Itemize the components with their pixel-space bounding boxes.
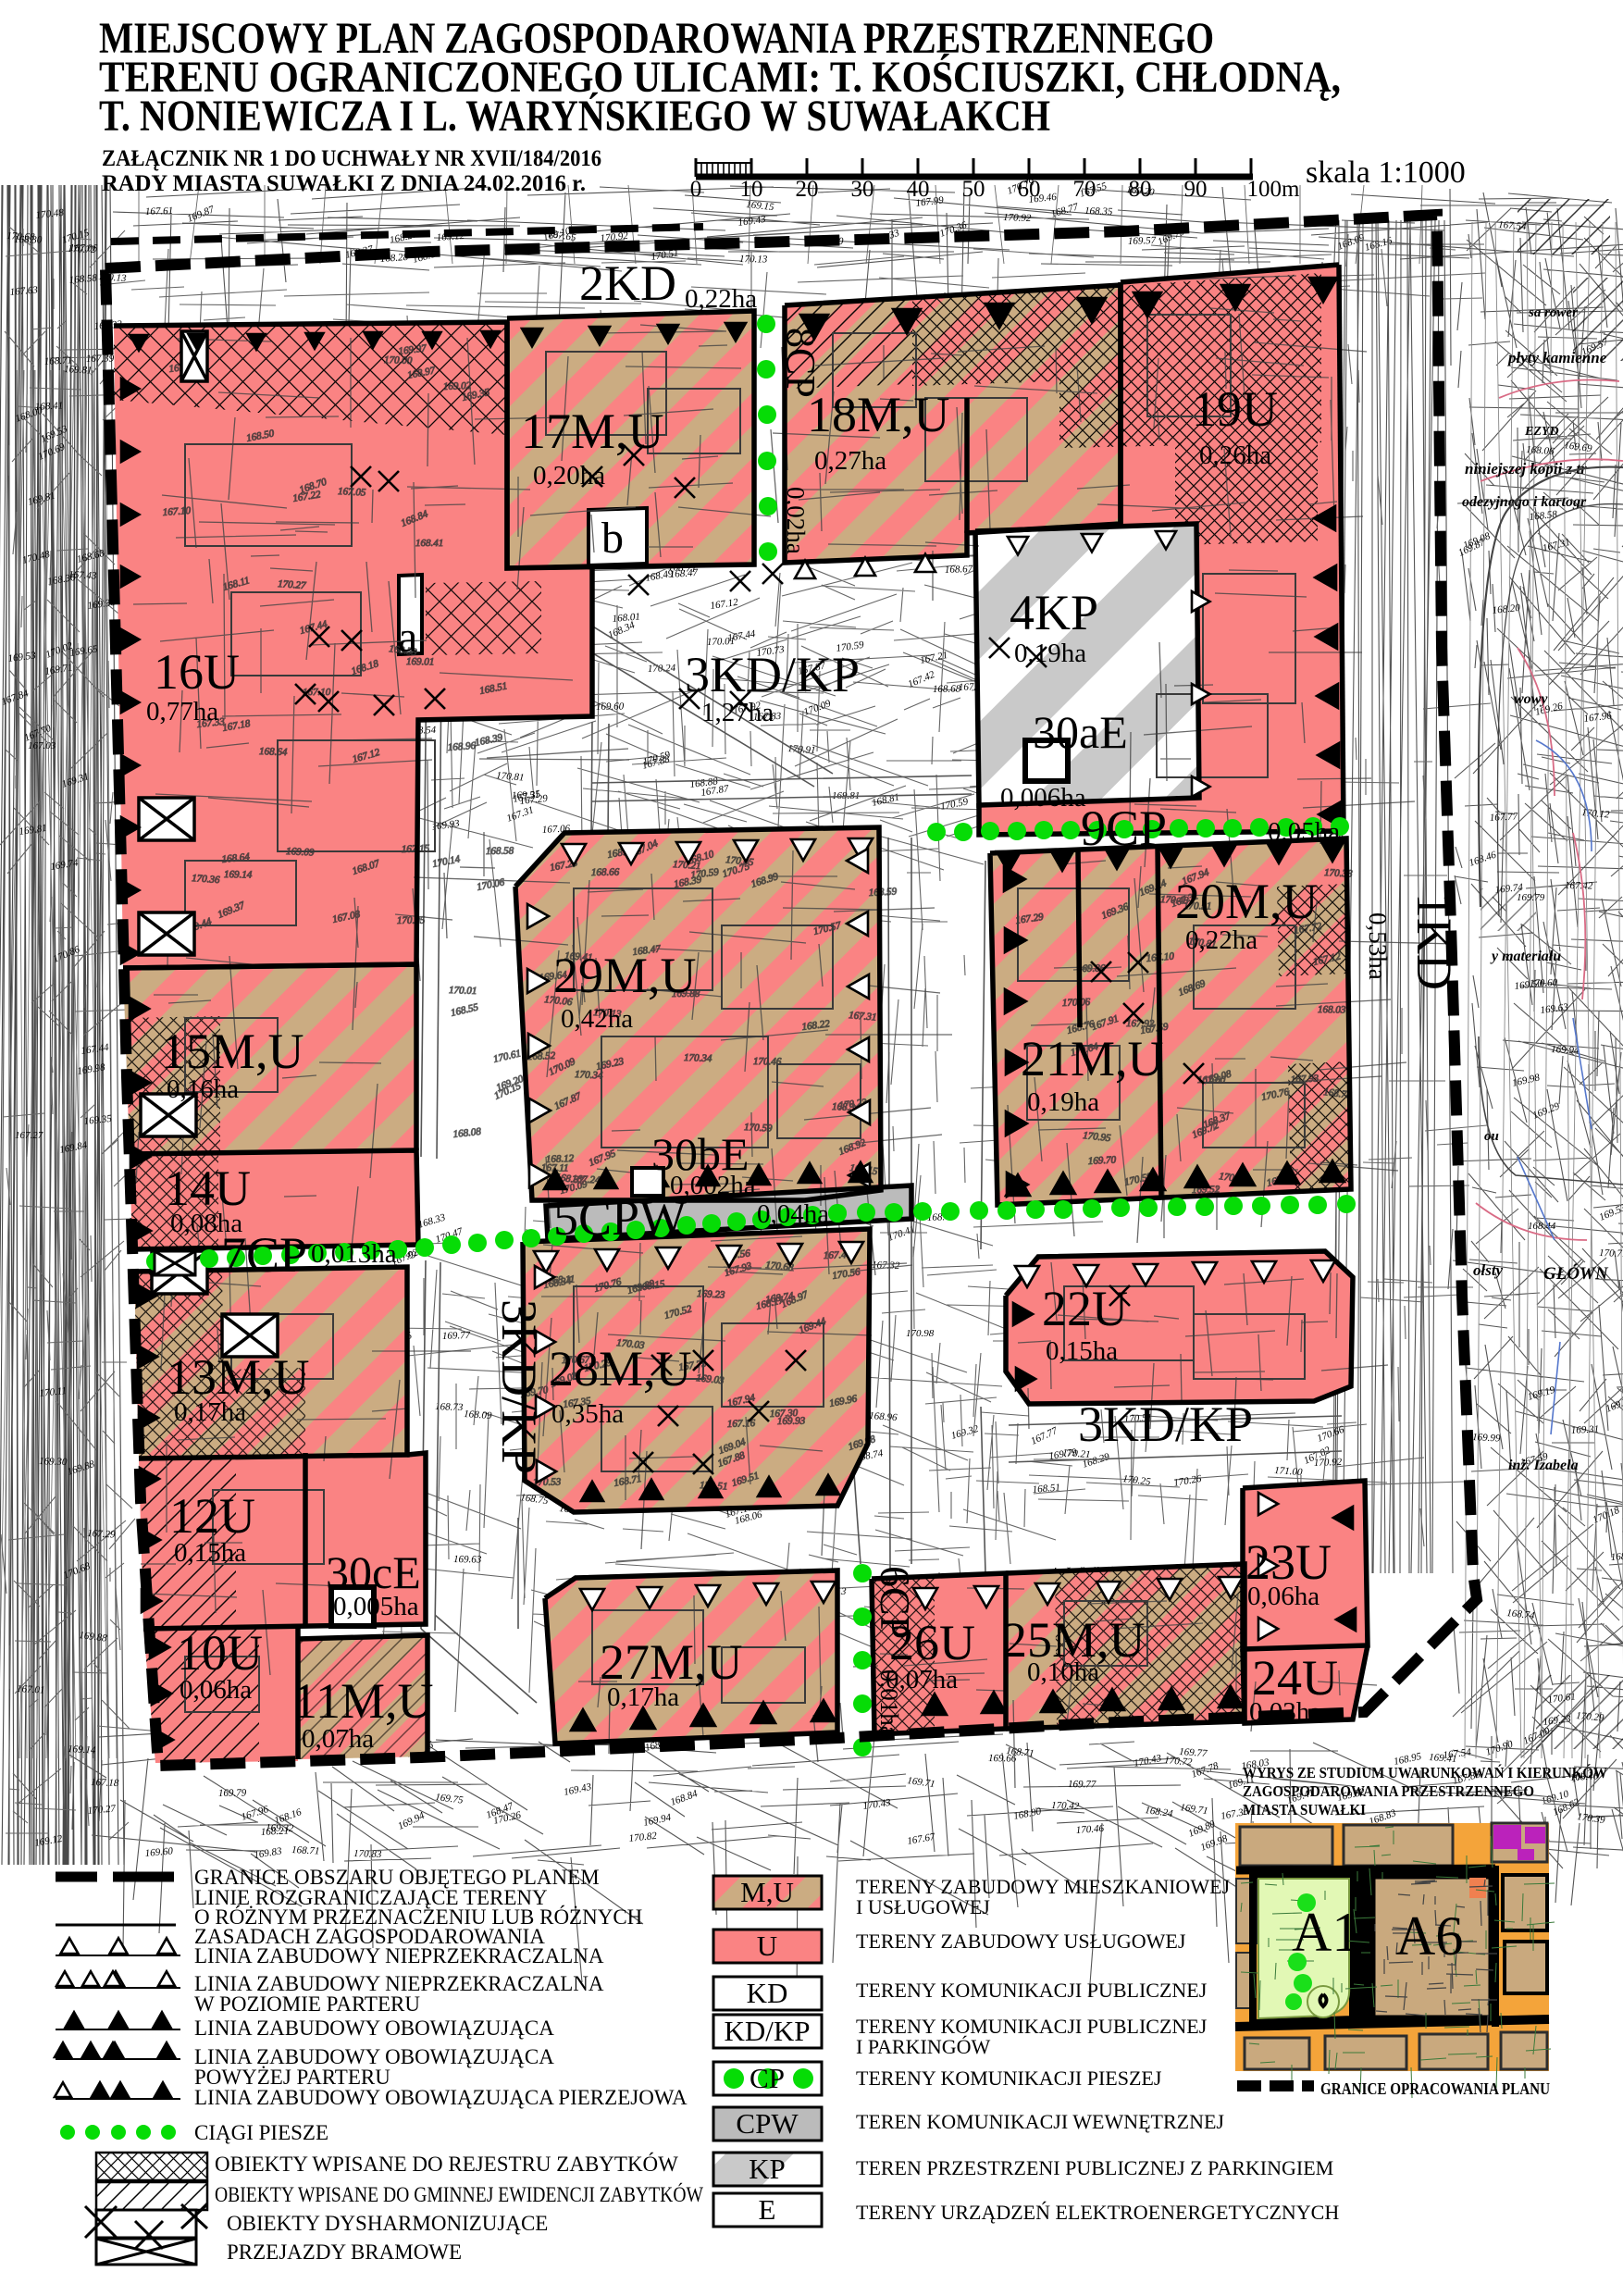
svg-text:168.09: 168.09: [464, 1409, 493, 1421]
svg-text:0,01ha: 0,01ha: [875, 1669, 903, 1737]
svg-text:168.44: 168.44: [1528, 1221, 1556, 1232]
svg-text:0,22ha: 0,22ha: [685, 284, 757, 314]
svg-text:167.01: 167.01: [17, 1683, 45, 1696]
svg-text:0,07ha: 0,07ha: [302, 1724, 374, 1754]
svg-text:KP: KP: [749, 2153, 786, 2185]
svg-text:168.71: 168.71: [291, 1844, 320, 1857]
svg-text:17M,U: 17M,U: [521, 403, 664, 459]
svg-text:167.27: 167.27: [15, 1130, 43, 1141]
svg-text:ZAŁĄCZNIK NR 1 DO UCHWAŁY NR X: ZAŁĄCZNIK NR 1 DO UCHWAŁY NR XVII/184/20…: [102, 146, 601, 171]
svg-text:170.01: 170.01: [449, 985, 477, 997]
svg-text:169.14: 169.14: [68, 1744, 96, 1756]
svg-text:0,15ha: 0,15ha: [1046, 1336, 1118, 1366]
svg-text:W POZIOMIE PARTERU: W POZIOMIE PARTERU: [194, 1992, 420, 2016]
svg-text:168.03: 168.03: [1318, 1004, 1346, 1016]
svg-text:0,10ha: 0,10ha: [1027, 1657, 1099, 1687]
svg-text:niniejszej kopii z tr: niniejszej kopii z tr: [1465, 460, 1587, 478]
svg-text:15M,U: 15M,U: [161, 1024, 304, 1079]
svg-text:3KD/KP: 3KD/KP: [685, 647, 860, 702]
svg-text:0,19ha: 0,19ha: [1014, 639, 1086, 668]
svg-text:0,013ha: 0,013ha: [311, 1239, 397, 1269]
svg-text:OBIEKTY DYSHARMONIZUJĄCE: OBIEKTY DYSHARMONIZUJĄCE: [227, 2212, 548, 2235]
svg-text:6CP: 6CP: [872, 1566, 919, 1639]
svg-text:GŁÓWN: GŁÓWN: [1543, 1263, 1609, 1284]
svg-text:0,006ha: 0,006ha: [1000, 783, 1086, 813]
svg-text:168.66: 168.66: [591, 866, 620, 878]
svg-text:RADY MIASTA SUWAŁKI Z DNIA 24.: RADY MIASTA SUWAŁKI Z DNIA 24.02.2016 r.: [102, 171, 586, 196]
svg-text:TERENY KOMUNIKACJI PIESZEJ: TERENY KOMUNIKACJI PIESZEJ: [856, 2066, 1162, 2090]
svg-text:171.00: 171.00: [1274, 1465, 1304, 1478]
svg-text:0,06ha: 0,06ha: [1247, 1582, 1319, 1611]
svg-text:odezyjnego i kartogr: odezyjnego i kartogr: [1462, 494, 1587, 510]
svg-text:y materiału: y materiału: [1490, 949, 1561, 964]
svg-text:13M,U: 13M,U: [167, 1349, 310, 1405]
svg-text:168.41: 168.41: [415, 538, 443, 549]
svg-text:170.83: 170.83: [353, 1848, 382, 1860]
svg-text:11M,U: 11M,U: [292, 1673, 434, 1729]
svg-text:169.60: 169.60: [596, 701, 625, 713]
svg-text:170.71: 170.71: [1599, 1247, 1623, 1260]
svg-text:170.06: 170.06: [1062, 997, 1091, 1009]
svg-text:170.72: 170.72: [68, 243, 96, 255]
svg-text:167.61: 167.61: [145, 205, 174, 217]
svg-text:169.77: 169.77: [442, 1330, 471, 1342]
svg-text:169.79: 169.79: [218, 1787, 247, 1799]
svg-text:b: b: [601, 514, 624, 563]
svg-text:0,005ha: 0,005ha: [333, 1592, 419, 1621]
svg-text:169.14: 169.14: [224, 869, 253, 881]
svg-text:167.30: 167.30: [770, 1408, 799, 1420]
svg-text:167.32: 167.32: [872, 1260, 900, 1272]
svg-text:168.64: 168.64: [259, 746, 288, 758]
svg-text:2KD: 2KD: [579, 255, 676, 311]
svg-text:GRANICE OPRACOWANIA PLANU: GRANICE OPRACOWANIA PLANU: [1320, 2079, 1550, 2098]
svg-text:170.42: 170.42: [1051, 1800, 1080, 1812]
svg-text:28M,U: 28M,U: [549, 1341, 692, 1396]
svg-text:169.63: 169.63: [453, 1554, 482, 1566]
svg-text:167.54: 167.54: [1498, 219, 1528, 232]
svg-text:0,77ha: 0,77ha: [146, 697, 218, 726]
svg-text:30aE: 30aE: [1033, 706, 1128, 758]
svg-text:TERENY KOMUNIKACJI PUBLICZNEJ: TERENY KOMUNIKACJI PUBLICZNEJ: [856, 1979, 1208, 2002]
svg-text:167.18: 167.18: [91, 1777, 119, 1789]
svg-text:20: 20: [796, 177, 819, 202]
svg-text:167.10: 167.10: [162, 505, 192, 518]
svg-text:0,17ha: 0,17ha: [607, 1682, 679, 1712]
svg-text:90: 90: [1184, 177, 1208, 202]
svg-text:168.58: 168.58: [486, 845, 514, 857]
svg-text:TERENY ZABUDOWY USŁUGOWEJ: TERENY ZABUDOWY USŁUGOWEJ: [856, 1930, 1186, 1953]
svg-text:U: U: [757, 1930, 777, 1962]
svg-text:0: 0: [690, 177, 702, 202]
svg-text:168.96: 168.96: [447, 740, 477, 753]
svg-text:TEREN PRZESTRZENI PUBLICZNEJ Z: TEREN PRZESTRZENI PUBLICZNEJ Z PARKINGIE…: [856, 2156, 1333, 2179]
svg-text:a: a: [398, 613, 417, 662]
svg-text:169.66: 169.66: [988, 1753, 1017, 1765]
svg-text:LINIA ZABUDOWY OBOWIĄZUJĄCA PI: LINIA ZABUDOWY OBOWIĄZUJĄCA PIERZEJOWA: [194, 2086, 688, 2109]
svg-text:9CP: 9CP: [1081, 800, 1167, 856]
svg-text:płyty kamienne: płyty kamienne: [1506, 349, 1607, 366]
svg-text:0,26ha: 0,26ha: [1199, 441, 1271, 470]
svg-text:22U: 22U: [1042, 1281, 1128, 1336]
svg-text:40: 40: [907, 177, 930, 202]
svg-text:0,15ha: 0,15ha: [174, 1538, 246, 1568]
svg-text:0,35ha: 0,35ha: [551, 1399, 624, 1429]
svg-text:ołsty: ołsty: [1473, 1261, 1504, 1279]
svg-text:30: 30: [851, 177, 874, 202]
svg-text:169.31: 169.31: [1571, 1423, 1600, 1436]
svg-text:E: E: [759, 2193, 776, 2226]
svg-text:19U: 19U: [1192, 381, 1278, 437]
svg-text:PRZEJAZDY BRAMOWE: PRZEJAZDY BRAMOWE: [227, 2240, 462, 2264]
svg-text:170.27: 170.27: [278, 578, 307, 591]
svg-text:0,04ha: 0,04ha: [757, 1199, 829, 1229]
svg-text:1,27ha: 1,27ha: [701, 698, 774, 727]
svg-text:0,42ha: 0,42ha: [561, 1004, 633, 1034]
svg-text:0,02ha: 0,02ha: [782, 487, 810, 554]
svg-text:KD/KP: KD/KP: [724, 2015, 810, 2047]
svg-text:168.67: 168.67: [945, 564, 973, 576]
svg-text:170.98: 170.98: [906, 1328, 935, 1339]
svg-text:A6: A6: [1395, 1905, 1463, 1967]
svg-text:MIASTA SUWAŁKI: MIASTA SUWAŁKI: [1243, 1801, 1366, 1818]
svg-text:sa rower: sa rower: [1528, 305, 1578, 320]
svg-text:21M,U: 21M,U: [1021, 1031, 1164, 1086]
svg-text:I PARKINGÓW: I PARKINGÓW: [856, 2035, 990, 2058]
svg-text:170.60: 170.60: [1530, 977, 1558, 989]
svg-text:168.65: 168.65: [1610, 1550, 1623, 1563]
svg-text:18M,U: 18M,U: [807, 387, 950, 442]
svg-text:3KD/KP: 3KD/KP: [1078, 1396, 1253, 1452]
svg-text:167.29: 167.29: [87, 1528, 116, 1541]
svg-text:167.03: 167.03: [28, 740, 56, 751]
svg-text:167.77: 167.77: [1490, 811, 1518, 824]
svg-text:8CP: 8CP: [778, 328, 824, 398]
svg-text:168.35: 168.35: [1084, 205, 1113, 217]
svg-text:169.30: 169.30: [39, 1456, 68, 1468]
svg-text:80: 80: [1129, 177, 1152, 202]
svg-text:170.05: 170.05: [397, 914, 426, 926]
svg-text:167.42: 167.42: [1565, 880, 1593, 892]
svg-text:LINIA ZABUDOWY OBOWIĄZUJĄCA: LINIA ZABUDOWY OBOWIĄZUJĄCA: [194, 2017, 554, 2040]
svg-text:ZAGOSPODAROWANIA PRZESTRZENNEG: ZAGOSPODAROWANIA PRZESTRZENNEGO: [1243, 1782, 1534, 1800]
svg-text:169.70: 169.70: [1088, 1154, 1117, 1167]
svg-text:170.36: 170.36: [192, 873, 221, 886]
svg-text:wowy: wowy: [1514, 691, 1548, 707]
svg-text:0,05ha: 0,05ha: [1268, 817, 1340, 847]
svg-text:168.68: 168.68: [933, 683, 961, 695]
svg-text:CPW: CPW: [736, 2107, 799, 2140]
svg-text:inż. Izabela: inż. Izabela: [1508, 1458, 1579, 1473]
svg-text:TEREN KOMUNIKACJI WEWNĘTRZNEJ: TEREN KOMUNIKACJI WEWNĘTRZNEJ: [856, 2110, 1224, 2133]
svg-text:30cE: 30cE: [326, 1546, 421, 1598]
svg-text:10: 10: [740, 177, 763, 202]
svg-text:168.59: 168.59: [869, 886, 898, 899]
svg-text:M,U: M,U: [740, 1876, 794, 1908]
svg-text:169.94: 169.94: [1551, 1044, 1580, 1057]
svg-text:0,20ha: 0,20ha: [533, 461, 605, 490]
svg-text:168.12: 168.12: [546, 1153, 575, 1165]
svg-text:4KP: 4KP: [1010, 585, 1098, 640]
svg-text:0,27ha: 0,27ha: [814, 446, 886, 476]
svg-text:KD: KD: [747, 1977, 788, 2009]
svg-text:WYRYS ZE STUDIUM UWARUNKOWAŃ I: WYRYS ZE STUDIUM UWARUNKOWAŃ I KIERUNKÓW: [1243, 1764, 1607, 1781]
svg-text:1KD: 1KD: [1406, 893, 1462, 990]
svg-text:10U: 10U: [177, 1625, 263, 1681]
svg-text:skala 1:1000: skala 1:1000: [1306, 155, 1466, 190]
svg-text:OBIEKTY WPISANE DO GMINNEJ EWI: OBIEKTY WPISANE DO GMINNEJ EWIDENCJI ZAB…: [215, 2182, 703, 2206]
svg-text:169.77: 169.77: [1179, 1746, 1208, 1759]
svg-text:169.77: 169.77: [1068, 1779, 1096, 1791]
svg-text:170.13: 170.13: [739, 254, 768, 266]
svg-text:29M,U: 29M,U: [553, 948, 697, 1003]
svg-text:168.06: 168.06: [1526, 444, 1555, 457]
svg-text:170.34: 170.34: [684, 1052, 712, 1064]
svg-text:0,03ha: 0,03ha: [1249, 1697, 1321, 1727]
svg-text:12U: 12U: [169, 1488, 255, 1544]
svg-text:27M,U: 27M,U: [600, 1634, 743, 1690]
svg-text:14U: 14U: [165, 1160, 251, 1216]
svg-text:TERENY URZĄDZEŃ ELEKTROENERGET: TERENY URZĄDZEŃ ELEKTROENERGETYCZNYCH: [856, 2201, 1339, 2224]
svg-text:0,06ha: 0,06ha: [180, 1675, 252, 1705]
svg-text:50: 50: [962, 177, 985, 202]
svg-text:OBIEKTY WPISANE DO REJESTRU ZA: OBIEKTY WPISANE DO REJESTRU ZABYTKÓW: [215, 2152, 678, 2176]
svg-text:T. NONIEWICZA I L. WARYŃSKIE: T. NONIEWICZA I L. WARYŃSKIEGO W SUWAŁAK…: [99, 92, 1050, 141]
svg-text:167.43: 167.43: [68, 569, 97, 582]
svg-text:169.79: 169.79: [1517, 892, 1545, 903]
svg-text:20M,U: 20M,U: [1175, 874, 1319, 929]
svg-text:168.71: 168.71: [44, 354, 73, 367]
svg-text:5CPW: 5CPW: [553, 1190, 687, 1246]
svg-text:70: 70: [1073, 177, 1096, 202]
svg-text:169.99: 169.99: [1472, 1432, 1501, 1445]
svg-text:170.46: 170.46: [1075, 1823, 1105, 1836]
svg-text:170.92: 170.92: [1003, 212, 1032, 224]
svg-text:0,53ha: 0,53ha: [1364, 912, 1392, 980]
svg-text:168.73: 168.73: [435, 1401, 464, 1413]
svg-text:7CP: 7CP: [221, 1227, 307, 1283]
svg-text:168.30: 168.30: [14, 234, 43, 246]
svg-text:CIĄGI PIESZE: CIĄGI PIESZE: [194, 2121, 328, 2144]
svg-text:3KD/KP: 3KD/KP: [491, 1299, 547, 1474]
svg-text:168.96: 168.96: [869, 1410, 898, 1423]
svg-text:169.23: 169.23: [697, 1288, 725, 1301]
svg-text:LINIA ZABUDOWY NIEPRZEKRACZALN: LINIA ZABUDOWY NIEPRZEKRACZALNA: [194, 1944, 604, 1967]
svg-text:0,19ha: 0,19ha: [1027, 1087, 1099, 1117]
svg-text:168.41: 168.41: [35, 400, 64, 413]
svg-text:60: 60: [1018, 177, 1041, 202]
svg-text:0,16ha: 0,16ha: [167, 1074, 239, 1104]
svg-text:16U: 16U: [154, 644, 240, 700]
svg-text:I USŁUGOWEJ: I USŁUGOWEJ: [856, 1895, 990, 1918]
svg-text:0,17ha: 0,17ha: [174, 1397, 246, 1427]
svg-text:EZYD: EZYD: [1524, 425, 1559, 439]
svg-text:A1: A1: [1292, 1902, 1359, 1963]
svg-text:0,22ha: 0,22ha: [1185, 925, 1258, 955]
svg-text:100m: 100m: [1247, 177, 1301, 202]
svg-text:CP: CP: [750, 2062, 785, 2094]
